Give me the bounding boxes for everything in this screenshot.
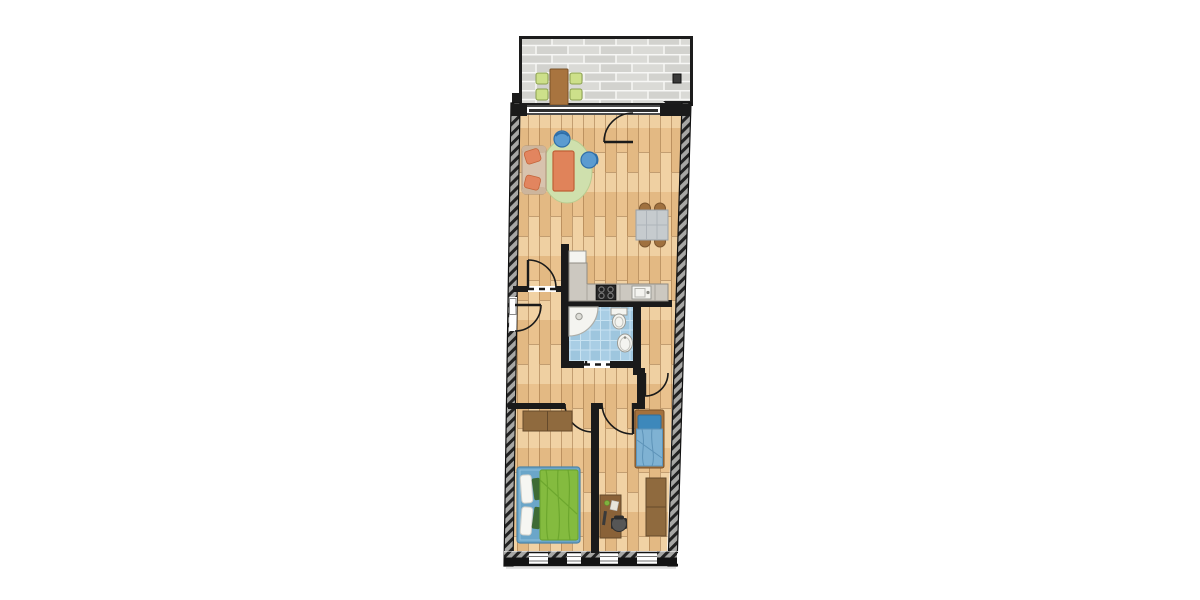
duvet [637, 429, 663, 466]
sofa [522, 146, 546, 194]
outdoor-chair [570, 73, 582, 84]
desk-paper [610, 500, 619, 510]
wall-post [504, 558, 529, 567]
wall-post [548, 558, 567, 567]
wall-post [504, 552, 529, 559]
chair-headrest [614, 516, 624, 520]
wardrobe [523, 411, 572, 431]
wall-post [581, 558, 600, 567]
pillow [638, 415, 661, 429]
bathroom-wall-left [561, 307, 569, 368]
entrance-door-slab [510, 299, 517, 315]
faucet [646, 291, 649, 294]
burner [608, 287, 613, 292]
stove [596, 285, 616, 300]
corridor-wall [633, 403, 645, 409]
lounge-chair [581, 152, 597, 168]
wall-shadow [506, 567, 676, 569]
bedroom-left [517, 411, 580, 543]
outdoor-chair [536, 89, 548, 100]
floor-plan-canvas [0, 0, 1200, 600]
burner [608, 293, 613, 298]
kitchen-wall-stub [561, 244, 569, 306]
shower-drain [576, 313, 582, 319]
bathroom [569, 307, 633, 361]
double-bed [517, 467, 580, 543]
burner [599, 293, 604, 298]
kitchen-sink [632, 286, 651, 299]
wall-lamp [673, 74, 681, 83]
outdoor-chair [570, 89, 582, 100]
dining-set [636, 203, 668, 247]
desk-plant [604, 500, 609, 505]
coffee-table [553, 151, 574, 191]
floor-plan-drawing [0, 0, 1200, 600]
burner [599, 287, 604, 292]
wall-post [657, 552, 677, 559]
wall-post [657, 558, 677, 567]
sliding-window-rail [529, 109, 658, 112]
wall-post [618, 552, 637, 559]
wall-post [618, 558, 637, 567]
pillow [520, 475, 533, 504]
corridor-wall [508, 403, 565, 409]
pillow [520, 507, 533, 536]
outdoor-table [550, 69, 568, 105]
outdoor-chair [536, 73, 548, 84]
wardrobe [646, 478, 666, 536]
lounge-chair-seat [581, 152, 597, 168]
balcony [512, 38, 692, 113]
single-bed [635, 410, 664, 468]
toilet [611, 308, 627, 329]
lounge-chair [554, 131, 570, 147]
wall-post [548, 552, 567, 559]
basin-faucet [624, 336, 627, 339]
washbasin [618, 334, 633, 352]
top-wall-post [511, 104, 527, 116]
entrance [509, 297, 517, 331]
top-wall-post [660, 104, 691, 116]
